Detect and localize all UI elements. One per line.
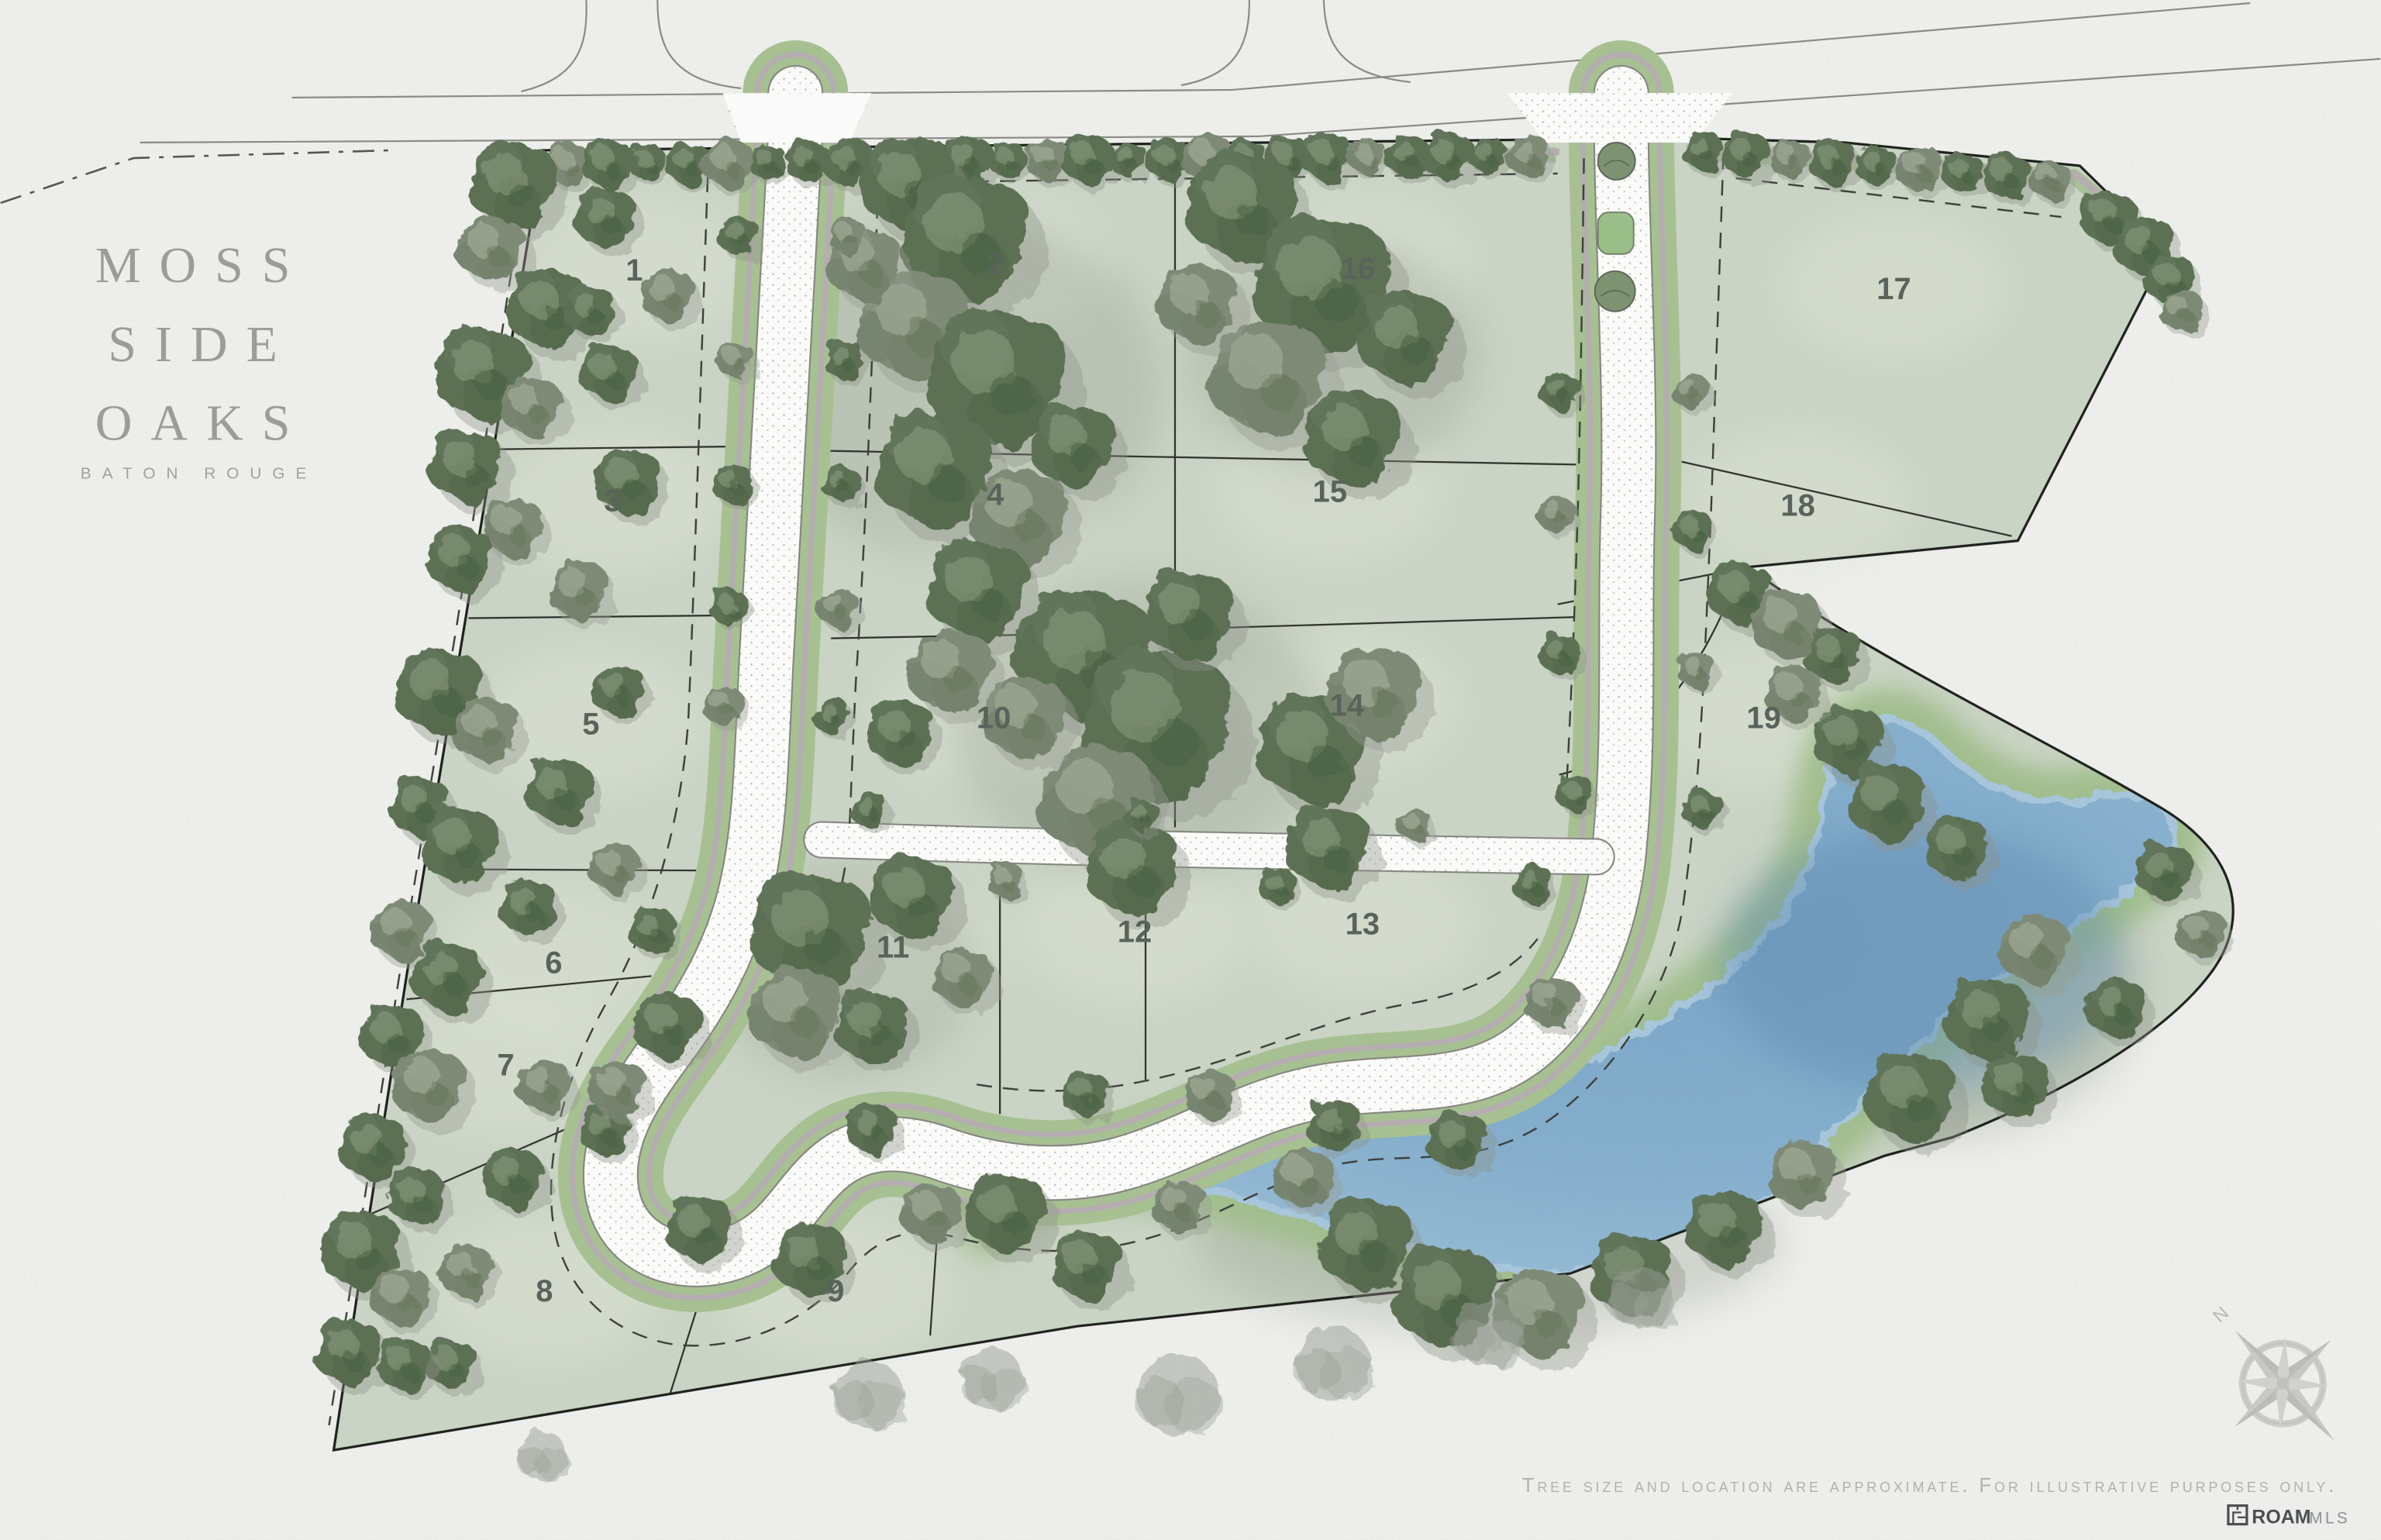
lot-label-15: 15	[1313, 475, 1347, 509]
lot-label-18: 18	[1780, 489, 1814, 523]
lot-label-13: 13	[1346, 907, 1380, 941]
title-line-3: OAKS	[95, 395, 309, 452]
lot-label-17: 17	[1876, 272, 1911, 306]
tree-icon	[517, 1431, 570, 1481]
lot-label-19: 19	[1746, 701, 1780, 736]
lot-label-2: 2	[987, 247, 1004, 281]
brand-suffix: MLS	[2309, 1509, 2350, 1527]
median-tree	[1595, 271, 1635, 312]
lot-label-9: 9	[827, 1274, 844, 1308]
lot-label-4: 4	[987, 478, 1004, 512]
lot-label-10: 10	[977, 701, 1011, 736]
tree-icon	[1135, 1354, 1222, 1435]
title-block: MOSS SIDE OAKS BATON ROUGE	[81, 237, 317, 483]
north-label: N	[2209, 1303, 2233, 1328]
site-plan-map: 1 2 3 4 5 6 7 8 9 10 11 12 13 14 15 16 1…	[0, 0, 2381, 1540]
tree-icon	[832, 1360, 906, 1428]
tree-icon	[960, 1348, 1026, 1410]
disclaimer-text: Tree size and location are approximate. …	[1522, 1473, 2338, 1497]
lot-label-11: 11	[877, 930, 909, 964]
roam-logo-icon	[2228, 1506, 2247, 1524]
median-tree	[1598, 143, 1635, 180]
compass-rose: N	[2165, 1263, 2381, 1486]
tree-icon	[1294, 1326, 1374, 1400]
lot-label-7: 7	[497, 1048, 514, 1082]
footer: Tree size and location are approximate. …	[1522, 1473, 2350, 1528]
lot-label-1: 1	[625, 253, 643, 288]
roam-mls-logo: ROAM MLS	[2228, 1506, 2350, 1528]
lot-label-3: 3	[604, 484, 621, 519]
entrance-median-island	[1598, 212, 1634, 254]
title-line-2: SIDE	[108, 316, 296, 373]
title-line-1: MOSS	[95, 237, 309, 294]
lot-label-8: 8	[536, 1274, 553, 1308]
entrance-a-flare	[722, 93, 871, 143]
title-subtitle: BATON ROUGE	[81, 465, 317, 483]
lot-label-16: 16	[1341, 252, 1375, 286]
road-centerline-dashes	[1, 150, 391, 203]
lot-label-12: 12	[1118, 915, 1152, 949]
lot-label-6: 6	[545, 946, 562, 980]
plat-map-page: 1 2 3 4 5 6 7 8 9 10 11 12 13 14 15 16 1…	[0, 0, 2381, 1540]
lot-label-5: 5	[582, 708, 599, 742]
brand-name: ROAM	[2252, 1506, 2310, 1528]
lot-label-14: 14	[1330, 689, 1365, 723]
tree-icon	[2159, 290, 2210, 338]
